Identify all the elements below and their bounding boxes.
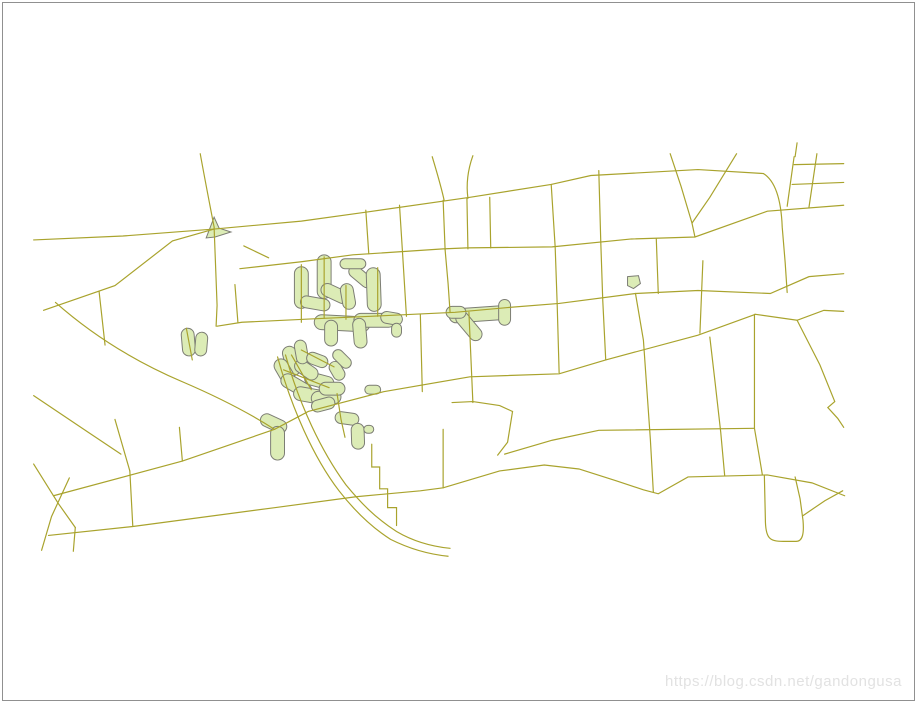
watermark-text: https://blog.csdn.net/gandongusa	[665, 673, 902, 690]
map-frame: https://blog.csdn.net/gandongusa	[2, 2, 915, 701]
map-viewport[interactable]: https://blog.csdn.net/gandongusa	[3, 3, 914, 700]
map-window: https://blog.csdn.net/gandongusa	[0, 0, 917, 703]
buffer-layer	[181, 217, 641, 460]
road-layer	[34, 143, 845, 556]
map-svg	[3, 3, 914, 700]
